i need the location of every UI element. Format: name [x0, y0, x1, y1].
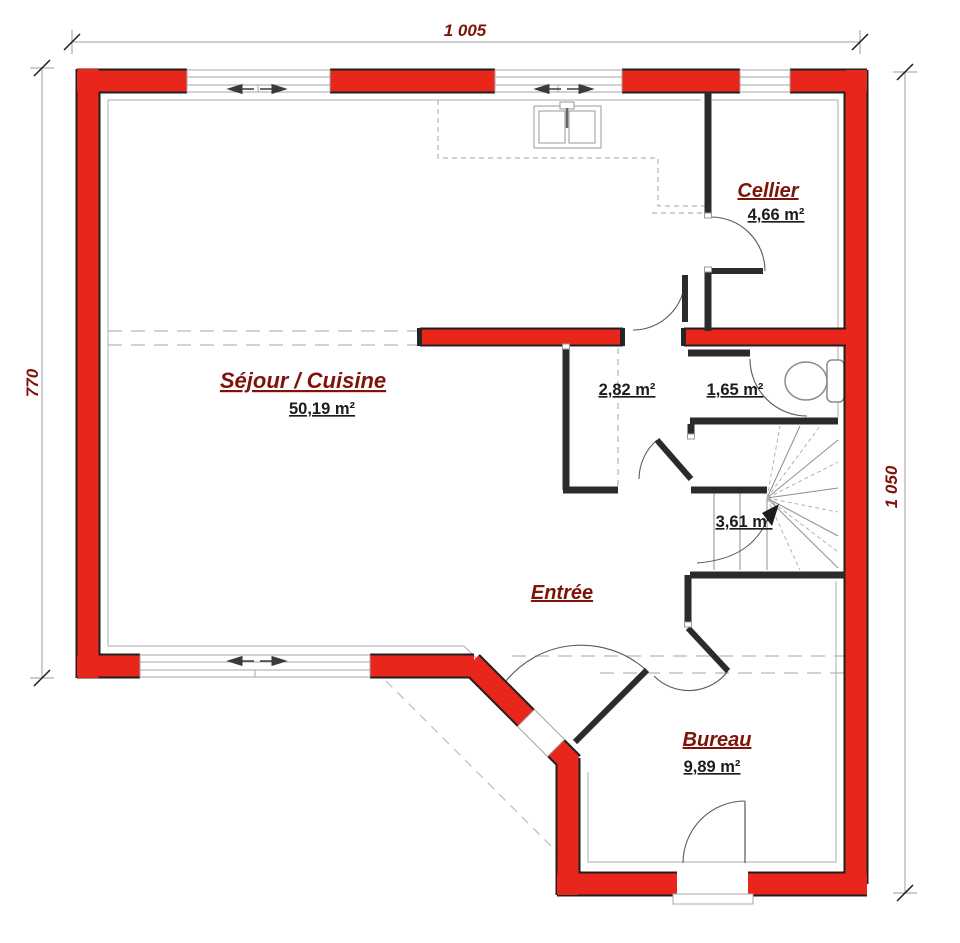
floor-plan-drawing: 1 005 770 1 050 Séjour / Cuisine 50,19 m…	[0, 0, 960, 943]
room-label-cellier: Cellier	[737, 180, 799, 202]
room-area-sejour: 50,19 m²	[289, 400, 356, 418]
room-area-closet: 2,82 m²	[599, 381, 656, 399]
window-cellier-top	[740, 70, 790, 92]
room-label-entree: Entrée	[531, 582, 593, 604]
paper-background	[0, 0, 960, 943]
room-label-sejour: Séjour / Cuisine	[220, 368, 386, 393]
kitchen-sink-icon	[534, 102, 601, 148]
dimension-top: 1 005	[444, 21, 487, 40]
room-area-cellier: 4,66 m²	[748, 206, 805, 224]
dimension-right: 1 050	[882, 465, 901, 508]
toilet-icon	[785, 360, 844, 402]
room-area-bureau: 9,89 m²	[684, 758, 741, 776]
sliding-window-sejour-top-left	[187, 70, 330, 92]
dimension-left: 770	[23, 368, 42, 397]
room-label-bureau: Bureau	[683, 729, 752, 751]
room-area-wc: 1,65 m²	[707, 381, 764, 399]
exterior-step	[673, 894, 753, 904]
floor-plan-canvas: 1 005 770 1 050 Séjour / Cuisine 50,19 m…	[0, 0, 960, 943]
room-area-stairs: 3,61 m²	[716, 513, 773, 531]
sliding-window-sejour-bottom	[140, 655, 370, 677]
